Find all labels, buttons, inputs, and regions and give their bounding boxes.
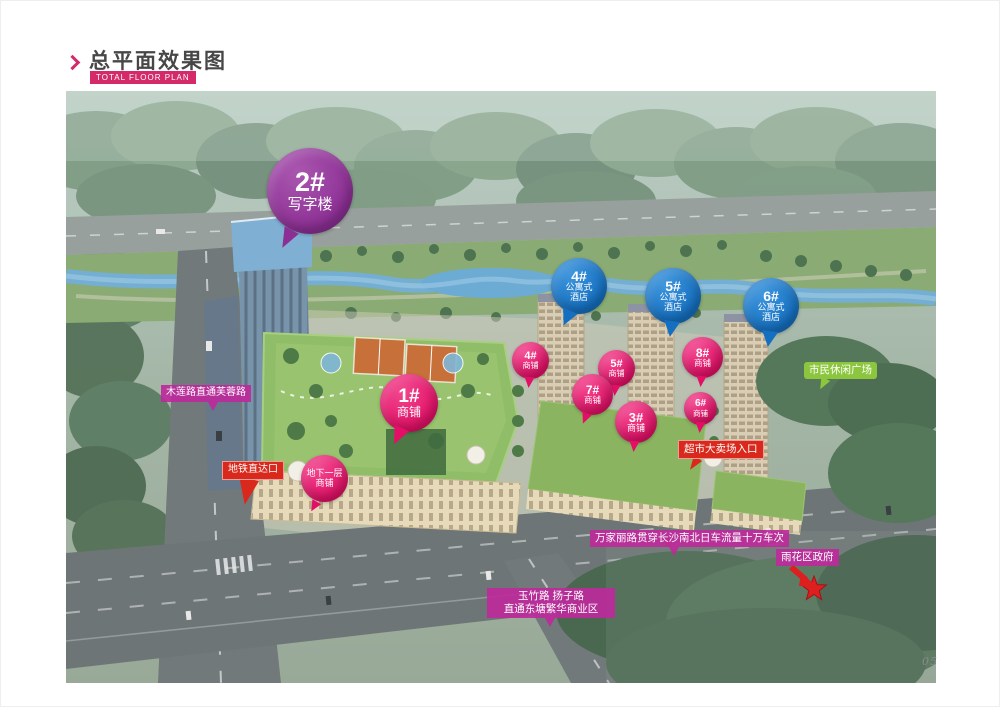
marker-shop-1[interactable]: 1# 商铺 bbox=[380, 374, 438, 432]
tag-tail bbox=[208, 402, 218, 411]
marker-label: 酒店 bbox=[570, 293, 588, 303]
marker-label: 写字楼 bbox=[287, 197, 332, 213]
government-arrow-icon bbox=[788, 565, 820, 591]
tag-wanjiali-road[interactable]: 万家丽路贯穿长沙南北日车流量十万车次 bbox=[590, 530, 789, 547]
page-number: 05 bbox=[922, 655, 938, 668]
brochure-page: 总平面效果图 TOTAL FLOOR PLAN bbox=[0, 0, 1000, 707]
chevron-right-icon bbox=[65, 55, 81, 71]
marker-number: 1# bbox=[398, 387, 419, 406]
marker-label: 商铺 bbox=[584, 396, 601, 405]
south-roads-line2: 直通东塘繁华商业区 bbox=[492, 603, 610, 616]
marker-label: 酒店 bbox=[664, 303, 682, 313]
marker-hotel-6[interactable]: 6# 公寓式 酒店 bbox=[743, 278, 799, 334]
balloon-tail bbox=[629, 441, 640, 453]
marker-label: 商铺 bbox=[627, 424, 645, 434]
tag-supermarket-entrance[interactable]: 超市大卖场入口 bbox=[678, 440, 764, 459]
balloon-tail bbox=[760, 330, 778, 348]
marker-label: 酒店 bbox=[762, 313, 780, 323]
marker-label: 商铺 bbox=[397, 406, 421, 419]
page-subtitle: TOTAL FLOOR PLAN bbox=[90, 71, 196, 84]
marker-hotel-4[interactable]: 4# 公寓式 酒店 bbox=[551, 258, 607, 314]
marker-number: 2# bbox=[295, 169, 325, 197]
balloon-tail bbox=[662, 320, 680, 338]
balloon-tail bbox=[696, 376, 707, 388]
balloon-tail bbox=[524, 377, 535, 389]
marker-label: 商铺 bbox=[693, 410, 708, 418]
tag-district-government[interactable]: 雨花区政府 bbox=[776, 549, 839, 566]
tag-tail bbox=[545, 618, 555, 627]
marker-shop-4[interactable]: 4# 商铺 bbox=[512, 342, 549, 379]
tag-tail bbox=[669, 547, 679, 556]
marker-shop-8[interactable]: 8# 商铺 bbox=[682, 337, 723, 378]
marker-label: 商铺 bbox=[523, 362, 539, 371]
tag-south-roads[interactable]: 玉竹路 扬子路 直通东塘繁华商业区 bbox=[487, 588, 615, 618]
marker-label: 商铺 bbox=[694, 359, 711, 368]
marker-shop-7[interactable]: 7# 商铺 bbox=[572, 374, 613, 415]
tag-civic-plaza[interactable]: 市民休闲广场 bbox=[804, 362, 877, 379]
marker-shop-6[interactable]: 6# 商铺 bbox=[684, 392, 717, 425]
tag-metro-entrance[interactable]: 地铁直达口 bbox=[222, 461, 284, 480]
marker-label: 商铺 bbox=[315, 479, 333, 489]
balloon-tail bbox=[695, 422, 706, 434]
marker-basement-shop[interactable]: 地下一层 商铺 bbox=[301, 455, 348, 502]
marker-office-2[interactable]: 2# 写字楼 bbox=[267, 148, 353, 234]
tag-mulian-road[interactable]: 木莲路直通芙蓉路 bbox=[161, 385, 251, 402]
marker-shop-3[interactable]: 3# 商铺 bbox=[615, 401, 657, 443]
marker-hotel-5[interactable]: 5# 公寓式 酒店 bbox=[645, 268, 701, 324]
south-roads-line1: 玉竹路 扬子路 bbox=[492, 590, 610, 603]
marker-label: 商铺 bbox=[609, 370, 625, 379]
marker-number: 3# bbox=[629, 411, 643, 424]
